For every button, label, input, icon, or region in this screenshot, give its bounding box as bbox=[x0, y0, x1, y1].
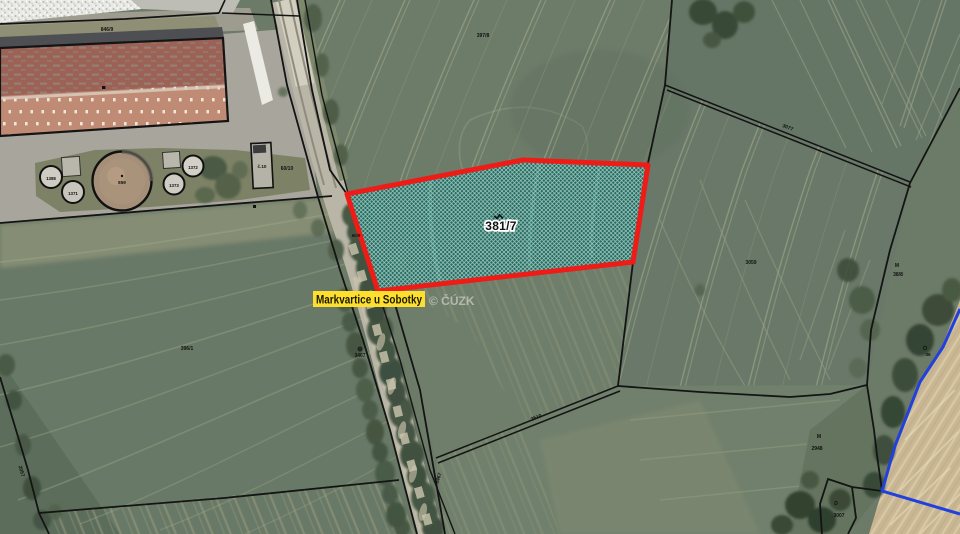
svg-text:396/1: 396/1 bbox=[181, 346, 194, 352]
svg-text:3059: 3059 bbox=[745, 260, 756, 266]
svg-text:38/8: 38/8 bbox=[893, 272, 903, 278]
svg-text:M: M bbox=[895, 263, 899, 269]
svg-text:1388: 1388 bbox=[46, 176, 56, 181]
svg-text:36: 36 bbox=[925, 352, 931, 357]
svg-text:859: 859 bbox=[118, 180, 126, 185]
svg-text:60/9: 60/9 bbox=[352, 233, 361, 238]
svg-text:č.10: č.10 bbox=[258, 164, 267, 169]
svg-text:397/8: 397/8 bbox=[477, 33, 490, 39]
svg-text:D: D bbox=[834, 501, 838, 507]
svg-text:M: M bbox=[817, 434, 821, 440]
svg-text:1372: 1372 bbox=[188, 165, 198, 170]
svg-text:2948: 2948 bbox=[811, 446, 822, 452]
svg-text:3007: 3007 bbox=[833, 513, 844, 519]
svg-text:846/9: 846/9 bbox=[101, 27, 114, 33]
svg-text:1373: 1373 bbox=[169, 183, 179, 188]
svg-text:381/7: 381/7 bbox=[485, 219, 517, 233]
svg-text:3467: 3467 bbox=[354, 353, 365, 359]
svg-text:Markvartice u Sobotky: Markvartice u Sobotky bbox=[316, 293, 422, 307]
svg-text:60/10: 60/10 bbox=[281, 166, 294, 172]
svg-text:1371: 1371 bbox=[68, 191, 78, 196]
svg-text:© ČÚZK: © ČÚZK bbox=[429, 293, 475, 308]
